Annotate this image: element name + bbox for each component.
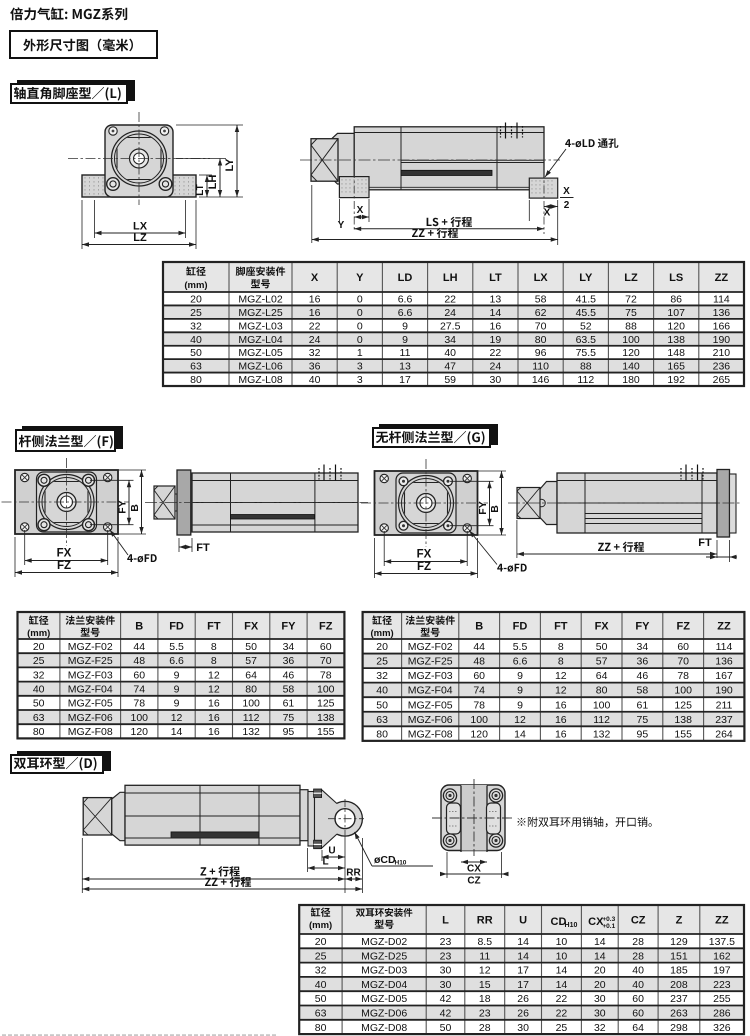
svg-text:Z: Z xyxy=(676,915,683,927)
svg-text:26: 26 xyxy=(517,993,529,1005)
svg-text:5.5: 5.5 xyxy=(513,641,528,653)
svg-text:MGZ-F05: MGZ-F05 xyxy=(408,699,453,711)
svg-text:øCD: øCD xyxy=(374,854,396,866)
svg-text:72: 72 xyxy=(625,294,637,306)
svg-text:15: 15 xyxy=(479,979,491,991)
svg-text:FZ: FZ xyxy=(57,560,71,572)
svg-text:8.5: 8.5 xyxy=(477,936,492,948)
svg-text:3: 3 xyxy=(357,374,363,386)
svg-text:20: 20 xyxy=(376,641,388,653)
svg-text:120: 120 xyxy=(130,726,148,738)
svg-text:22: 22 xyxy=(309,320,321,332)
svg-text:16: 16 xyxy=(208,698,220,710)
svg-text:16: 16 xyxy=(490,320,502,332)
svg-text:MGZ-D04: MGZ-D04 xyxy=(361,979,407,991)
svg-text:12: 12 xyxy=(479,965,491,977)
svg-text:52: 52 xyxy=(580,320,592,332)
svg-text:140: 140 xyxy=(622,361,640,373)
svg-text:9: 9 xyxy=(517,685,523,697)
svg-text:MGZ-F08: MGZ-F08 xyxy=(68,726,113,738)
svg-text:34: 34 xyxy=(444,334,456,346)
svg-text:112: 112 xyxy=(577,374,594,386)
svg-text:265: 265 xyxy=(713,374,731,386)
svg-text:9: 9 xyxy=(402,334,408,346)
svg-text:FT: FT xyxy=(554,621,568,633)
svg-text:(mm): (mm) xyxy=(309,920,332,931)
svg-text:U: U xyxy=(519,915,527,927)
svg-text:MGZ-F25: MGZ-F25 xyxy=(68,655,113,667)
svg-text:40: 40 xyxy=(632,965,644,977)
svg-text:17: 17 xyxy=(517,965,529,977)
svg-text:114: 114 xyxy=(713,294,730,306)
svg-text:60: 60 xyxy=(320,641,332,653)
svg-text:298: 298 xyxy=(670,1022,688,1034)
svg-text:14: 14 xyxy=(514,728,526,740)
svg-text:6.6: 6.6 xyxy=(169,655,184,667)
svg-text:16: 16 xyxy=(555,728,567,740)
svg-text:CX: CX xyxy=(467,864,481,875)
svg-text:16: 16 xyxy=(555,699,567,711)
svg-text:75.5: 75.5 xyxy=(576,347,597,359)
svg-text:ZZ: ZZ xyxy=(715,272,729,284)
svg-text:MGZ-F08: MGZ-F08 xyxy=(408,728,453,740)
svg-text:8: 8 xyxy=(211,641,217,653)
svg-text:12: 12 xyxy=(171,712,183,724)
svg-text:L: L xyxy=(323,857,329,868)
svg-text:12: 12 xyxy=(208,669,220,681)
svg-text:9: 9 xyxy=(174,684,180,696)
svg-text:58: 58 xyxy=(637,685,649,697)
svg-text:10: 10 xyxy=(556,936,568,948)
svg-text:60: 60 xyxy=(632,1007,644,1019)
svg-text:129: 129 xyxy=(670,936,688,948)
svg-text:151: 151 xyxy=(670,950,688,962)
svg-text:16: 16 xyxy=(309,307,321,319)
svg-text:45.5: 45.5 xyxy=(576,307,597,319)
svg-text:34: 34 xyxy=(637,641,649,653)
svg-text:23: 23 xyxy=(440,936,452,948)
svg-text:LS: LS xyxy=(669,272,683,284)
svg-text:20: 20 xyxy=(594,965,606,977)
svg-text:78: 78 xyxy=(133,698,145,710)
svg-text:X: X xyxy=(311,272,319,284)
svg-text:137.5: 137.5 xyxy=(709,936,735,948)
svg-text:+0.1: +0.1 xyxy=(602,923,615,930)
svg-text:64: 64 xyxy=(596,670,608,682)
svg-text:100: 100 xyxy=(622,334,640,346)
svg-text:50: 50 xyxy=(315,993,327,1005)
svg-text:Y: Y xyxy=(338,220,345,231)
svg-text:75: 75 xyxy=(637,714,649,726)
svg-text:237: 237 xyxy=(715,714,733,726)
svg-text:MGZ-L03: MGZ-L03 xyxy=(238,320,283,332)
svg-text:48: 48 xyxy=(133,655,145,667)
svg-text:138: 138 xyxy=(317,712,335,724)
svg-text:36: 36 xyxy=(309,361,321,373)
svg-text:22: 22 xyxy=(556,1007,568,1019)
svg-text:24: 24 xyxy=(444,307,456,319)
svg-text:30: 30 xyxy=(440,979,452,991)
svg-text:120: 120 xyxy=(667,320,685,332)
svg-text:28: 28 xyxy=(632,936,644,948)
svg-text:11: 11 xyxy=(400,347,411,359)
svg-text:32: 32 xyxy=(315,965,327,977)
svg-text:B: B xyxy=(489,505,501,513)
svg-text:LT: LT xyxy=(195,184,206,195)
svg-text:13: 13 xyxy=(399,361,411,373)
svg-text:+0.3: +0.3 xyxy=(602,916,615,923)
svg-text:25: 25 xyxy=(556,1022,568,1034)
svg-text:23: 23 xyxy=(440,950,452,962)
svg-text:FY: FY xyxy=(281,621,296,633)
svg-text:X: X xyxy=(544,208,551,219)
svg-text:14: 14 xyxy=(556,979,568,991)
svg-text:40: 40 xyxy=(315,979,327,991)
svg-text:MGZ-L02: MGZ-L02 xyxy=(238,294,283,306)
svg-text:100: 100 xyxy=(130,712,148,724)
svg-text:FD: FD xyxy=(513,621,528,633)
svg-text:70: 70 xyxy=(320,655,332,667)
svg-text:MGZ-F04: MGZ-F04 xyxy=(68,684,113,696)
svg-text:64: 64 xyxy=(245,669,257,681)
svg-text:60: 60 xyxy=(677,641,689,653)
svg-text:223: 223 xyxy=(713,979,731,991)
svg-text:32: 32 xyxy=(33,669,45,681)
svg-text:ZZ: ZZ xyxy=(717,621,731,633)
svg-text:22: 22 xyxy=(444,294,456,306)
svg-text:B: B xyxy=(129,504,141,512)
svg-text:FX: FX xyxy=(57,548,72,560)
svg-text:88: 88 xyxy=(580,361,592,373)
svg-text:155: 155 xyxy=(317,726,335,738)
svg-text:42: 42 xyxy=(440,1007,452,1019)
svg-text:14: 14 xyxy=(171,726,183,738)
svg-text:12: 12 xyxy=(514,714,526,726)
svg-text:125: 125 xyxy=(674,699,692,711)
svg-text:14: 14 xyxy=(490,307,502,319)
svg-text:22: 22 xyxy=(490,347,502,359)
svg-text:62: 62 xyxy=(535,307,547,319)
svg-text:74: 74 xyxy=(133,684,145,696)
svg-text:12: 12 xyxy=(555,685,567,697)
svg-text:17: 17 xyxy=(517,979,529,991)
svg-text:60: 60 xyxy=(632,993,644,1005)
svg-text:LH: LH xyxy=(443,272,458,284)
svg-text:MGZ-D02: MGZ-D02 xyxy=(361,936,407,948)
svg-text:6.6: 6.6 xyxy=(513,656,528,668)
svg-text:63.5: 63.5 xyxy=(576,334,597,346)
svg-text:46: 46 xyxy=(637,670,649,682)
svg-text:L: L xyxy=(442,915,449,927)
svg-text:162: 162 xyxy=(713,950,731,962)
svg-text:FX: FX xyxy=(417,549,432,561)
svg-text:23: 23 xyxy=(479,1007,491,1019)
svg-text:165: 165 xyxy=(667,361,685,373)
svg-text:60: 60 xyxy=(473,670,485,682)
svg-text:9: 9 xyxy=(174,698,180,710)
svg-text:(mm): (mm) xyxy=(370,628,393,639)
svg-text:FT: FT xyxy=(196,542,210,554)
svg-text:FZ: FZ xyxy=(676,621,690,633)
svg-text:FY: FY xyxy=(477,501,489,514)
svg-text:MGZ-D25: MGZ-D25 xyxy=(361,950,407,962)
svg-text:326: 326 xyxy=(713,1022,731,1034)
svg-text:120: 120 xyxy=(622,347,640,359)
svg-text:MGZ-D03: MGZ-D03 xyxy=(361,965,407,977)
svg-text:80: 80 xyxy=(245,684,257,696)
svg-text:78: 78 xyxy=(677,670,689,682)
svg-text:X: X xyxy=(563,186,570,197)
svg-text:25: 25 xyxy=(376,656,388,668)
svg-text:24: 24 xyxy=(490,361,502,373)
svg-text:30: 30 xyxy=(490,374,502,386)
svg-text:MGZ-L05: MGZ-L05 xyxy=(238,347,283,359)
svg-text:40: 40 xyxy=(190,334,202,346)
svg-text:25: 25 xyxy=(315,950,327,962)
svg-text:LX: LX xyxy=(133,221,148,233)
svg-text:78: 78 xyxy=(320,669,332,681)
svg-text:MGZ-L04: MGZ-L04 xyxy=(238,334,283,346)
svg-text:138: 138 xyxy=(667,334,685,346)
svg-text:MGZ-F02: MGZ-F02 xyxy=(68,641,113,653)
svg-text:8: 8 xyxy=(558,656,564,668)
svg-text:264: 264 xyxy=(715,728,733,740)
svg-text:H10: H10 xyxy=(395,860,407,867)
svg-text:78: 78 xyxy=(473,699,485,711)
svg-text:114: 114 xyxy=(716,641,733,653)
svg-text:146: 146 xyxy=(532,374,550,386)
svg-text:180: 180 xyxy=(622,374,640,386)
svg-text:80: 80 xyxy=(596,685,608,697)
svg-text:30: 30 xyxy=(440,965,452,977)
svg-text:MGZ-L25: MGZ-L25 xyxy=(238,307,283,319)
svg-text:136: 136 xyxy=(715,656,733,668)
svg-text:211: 211 xyxy=(716,699,733,711)
svg-text:50: 50 xyxy=(376,699,388,711)
svg-text:64: 64 xyxy=(632,1022,644,1034)
svg-text:22: 22 xyxy=(556,993,568,1005)
svg-text:59: 59 xyxy=(444,374,456,386)
svg-text:0: 0 xyxy=(357,294,363,306)
svg-text:255: 255 xyxy=(713,993,731,1005)
svg-text:0: 0 xyxy=(357,334,363,346)
svg-text:36: 36 xyxy=(283,655,295,667)
svg-text:FZ: FZ xyxy=(319,621,333,633)
svg-text:190: 190 xyxy=(715,685,733,697)
svg-text:18: 18 xyxy=(479,993,491,1005)
svg-text:MGZ-F04: MGZ-F04 xyxy=(408,685,453,697)
svg-text:RR: RR xyxy=(477,915,493,927)
svg-text:28: 28 xyxy=(632,950,644,962)
svg-text:CZ: CZ xyxy=(467,876,480,887)
svg-text:100: 100 xyxy=(242,698,260,710)
svg-text:75: 75 xyxy=(625,307,637,319)
svg-text:20: 20 xyxy=(315,936,327,948)
svg-text:63: 63 xyxy=(315,1007,327,1019)
svg-text:61: 61 xyxy=(637,699,649,711)
svg-text:14: 14 xyxy=(556,965,568,977)
svg-text:30: 30 xyxy=(517,1022,529,1034)
svg-text:80: 80 xyxy=(33,726,45,738)
svg-text:80: 80 xyxy=(190,374,202,386)
svg-text:9: 9 xyxy=(517,699,523,711)
svg-text:16: 16 xyxy=(208,726,220,738)
svg-text:LX: LX xyxy=(534,272,549,284)
svg-text:25: 25 xyxy=(33,655,45,667)
svg-text:U: U xyxy=(328,846,335,857)
svg-text:107: 107 xyxy=(667,307,685,319)
svg-text:MGZ-F06: MGZ-F06 xyxy=(68,712,113,724)
svg-text:24: 24 xyxy=(309,334,321,346)
svg-text:63: 63 xyxy=(190,361,202,373)
svg-text:40: 40 xyxy=(376,685,388,697)
svg-text:44: 44 xyxy=(473,641,485,653)
svg-text:27.5: 27.5 xyxy=(440,320,461,332)
svg-text:125: 125 xyxy=(317,698,335,710)
svg-text:58: 58 xyxy=(535,294,547,306)
svg-text:100: 100 xyxy=(593,699,611,711)
svg-text:12: 12 xyxy=(555,670,567,682)
svg-text:50: 50 xyxy=(33,698,45,710)
svg-text:100: 100 xyxy=(470,714,488,726)
svg-text:20: 20 xyxy=(190,294,202,306)
svg-text:167: 167 xyxy=(715,670,733,682)
svg-text:96: 96 xyxy=(535,347,547,359)
svg-text:42: 42 xyxy=(440,993,452,1005)
svg-text:X: X xyxy=(357,205,364,216)
svg-text:LD: LD xyxy=(398,272,413,284)
svg-text:FT: FT xyxy=(698,537,712,549)
svg-text:14: 14 xyxy=(517,936,529,948)
svg-text:FD: FD xyxy=(169,621,184,633)
svg-text:286: 286 xyxy=(713,1007,731,1019)
svg-text:(mm): (mm) xyxy=(27,628,50,639)
svg-text:B: B xyxy=(475,621,483,633)
svg-text:11: 11 xyxy=(479,950,490,962)
svg-text:LY: LY xyxy=(579,272,593,284)
svg-text:100: 100 xyxy=(317,684,335,696)
svg-text:100: 100 xyxy=(674,685,692,697)
svg-text:138: 138 xyxy=(674,714,692,726)
svg-text:50: 50 xyxy=(440,1022,452,1034)
svg-text:14: 14 xyxy=(594,950,606,962)
svg-text:FZ: FZ xyxy=(417,561,431,573)
svg-text:16: 16 xyxy=(309,294,321,306)
svg-text:RR: RR xyxy=(346,868,361,879)
svg-text:95: 95 xyxy=(283,726,295,738)
svg-text:86: 86 xyxy=(670,294,682,306)
svg-text:50: 50 xyxy=(596,641,608,653)
svg-text:17: 17 xyxy=(399,374,411,386)
svg-text:60: 60 xyxy=(133,669,145,681)
svg-text:CZ: CZ xyxy=(631,915,646,927)
svg-text:63: 63 xyxy=(33,712,45,724)
svg-text:110: 110 xyxy=(532,361,549,373)
svg-text:57: 57 xyxy=(245,655,257,667)
svg-text:8: 8 xyxy=(558,641,564,653)
svg-text:50: 50 xyxy=(190,347,202,359)
svg-text:46: 46 xyxy=(283,669,295,681)
svg-text:112: 112 xyxy=(243,712,260,724)
svg-text:70: 70 xyxy=(535,320,547,332)
svg-text:5.5: 5.5 xyxy=(169,641,184,653)
svg-text:32: 32 xyxy=(309,347,321,359)
svg-text:208: 208 xyxy=(670,979,688,991)
svg-text:61: 61 xyxy=(283,698,295,710)
svg-text:LT: LT xyxy=(489,272,502,284)
svg-text:MGZ-L06: MGZ-L06 xyxy=(238,361,283,373)
svg-text:FY: FY xyxy=(117,500,129,513)
svg-text:58: 58 xyxy=(283,684,295,696)
svg-text:136: 136 xyxy=(713,307,731,319)
svg-text:132: 132 xyxy=(242,726,260,738)
svg-text:40: 40 xyxy=(33,684,45,696)
svg-text:MGZ-D08: MGZ-D08 xyxy=(361,1022,407,1034)
svg-text:H10: H10 xyxy=(565,922,578,929)
svg-text:80: 80 xyxy=(535,334,547,346)
svg-text:32: 32 xyxy=(594,1022,606,1034)
svg-text:9: 9 xyxy=(517,670,523,682)
svg-text:263: 263 xyxy=(670,1007,688,1019)
svg-text:(mm): (mm) xyxy=(184,280,207,291)
svg-text:16: 16 xyxy=(555,714,567,726)
svg-text:B: B xyxy=(135,621,143,633)
svg-text:6.6: 6.6 xyxy=(398,307,413,319)
svg-text:MGZ-D05: MGZ-D05 xyxy=(361,993,407,1005)
svg-text:16: 16 xyxy=(208,712,220,724)
svg-text:LZ: LZ xyxy=(133,232,147,244)
svg-text:40: 40 xyxy=(309,374,321,386)
svg-text:MGZ-F25: MGZ-F25 xyxy=(408,656,453,668)
svg-text:32: 32 xyxy=(190,320,202,332)
svg-text:FY: FY xyxy=(635,621,650,633)
svg-text:40: 40 xyxy=(632,979,644,991)
svg-text:MGZ-F03: MGZ-F03 xyxy=(408,670,453,682)
svg-text:FX: FX xyxy=(595,621,610,633)
svg-text:12: 12 xyxy=(208,684,220,696)
svg-text:95: 95 xyxy=(637,728,649,740)
svg-text:41.5: 41.5 xyxy=(576,294,597,306)
svg-text:MGZ-L08: MGZ-L08 xyxy=(238,374,283,386)
svg-text:70: 70 xyxy=(677,656,689,668)
svg-text:19: 19 xyxy=(490,334,502,346)
svg-text:155: 155 xyxy=(674,728,692,740)
svg-text:44: 44 xyxy=(133,641,145,653)
svg-text:185: 185 xyxy=(670,965,688,977)
svg-text:28: 28 xyxy=(479,1022,491,1034)
svg-text:LZ: LZ xyxy=(624,272,638,284)
svg-text:74: 74 xyxy=(473,685,485,697)
svg-text:50: 50 xyxy=(245,641,257,653)
svg-text:9: 9 xyxy=(402,320,408,332)
svg-text:1: 1 xyxy=(357,347,363,359)
svg-text:197: 197 xyxy=(713,965,731,977)
svg-text:40: 40 xyxy=(444,347,456,359)
svg-text:26: 26 xyxy=(517,1007,529,1019)
svg-text:34: 34 xyxy=(283,641,295,653)
svg-text:120: 120 xyxy=(470,728,488,740)
svg-text:20: 20 xyxy=(33,641,45,653)
svg-text:30: 30 xyxy=(594,1007,606,1019)
svg-text:166: 166 xyxy=(713,320,731,332)
svg-text:2: 2 xyxy=(564,200,570,211)
svg-text:10: 10 xyxy=(556,950,568,962)
svg-text:112: 112 xyxy=(593,714,610,726)
svg-text:75: 75 xyxy=(283,712,295,724)
svg-text:8: 8 xyxy=(211,655,217,667)
svg-text:3: 3 xyxy=(357,361,363,373)
svg-text:0: 0 xyxy=(357,307,363,319)
